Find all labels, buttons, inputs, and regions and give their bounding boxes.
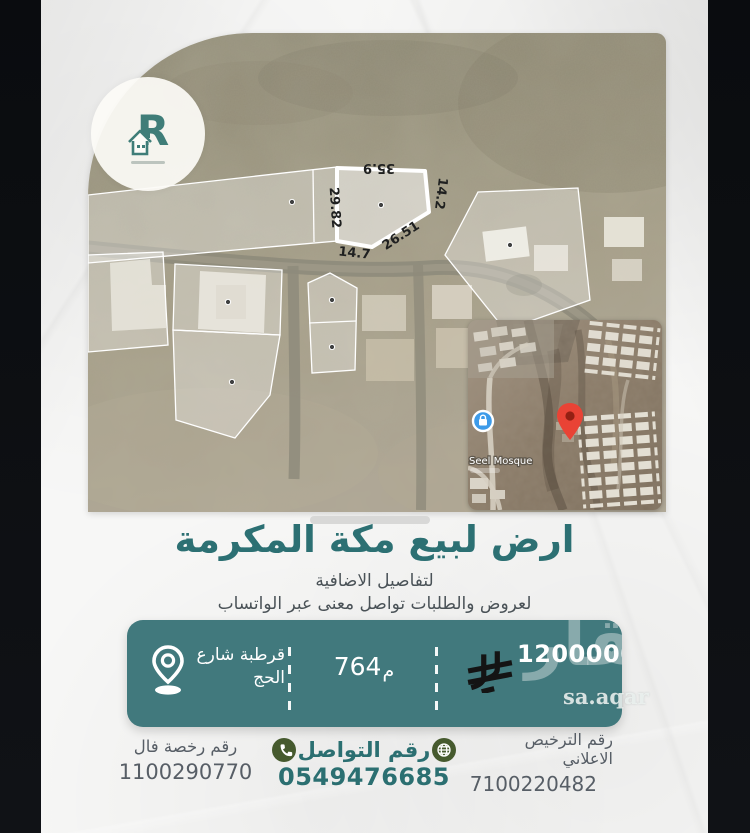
agency-logo-badge: R bbox=[91, 77, 205, 191]
area-unit: م bbox=[382, 662, 394, 681]
left-letterbox-bar bbox=[0, 0, 41, 833]
price-value: 1200000 bbox=[517, 640, 617, 668]
fal-license-number: 1100290770 bbox=[118, 760, 253, 784]
phone-icon bbox=[272, 738, 296, 762]
fal-license-block: رقم رخصة فال 1100290770 bbox=[118, 737, 253, 784]
inset-location-map: Seel Mosque bbox=[468, 320, 662, 510]
area-value: 764 bbox=[334, 654, 382, 679]
blue-poi-badge-icon bbox=[473, 411, 493, 431]
mosque-sublabel-smudge bbox=[470, 468, 500, 473]
house-r-logo-icon: R bbox=[113, 105, 183, 159]
dimension-top: 35.9 bbox=[363, 160, 395, 175]
subtitle-whatsapp: لعروض والطلبات تواصل معنى عبر الواتساب bbox=[41, 594, 708, 614]
contact-label: رقم التواصل bbox=[298, 738, 431, 762]
location-text: قرطبة شارع الحج bbox=[191, 644, 285, 690]
inset-map-graphic: Seel Mosque bbox=[468, 320, 662, 510]
ad-license-number: 7100220482 bbox=[420, 772, 597, 796]
page-title: ارض لبيع مكة المكرمة bbox=[41, 518, 708, 561]
saudi-riyal-icon bbox=[465, 649, 515, 693]
banner-divider-right bbox=[435, 647, 438, 711]
dimension-left: 29.82 bbox=[326, 187, 344, 229]
right-letterbox-bar bbox=[708, 0, 750, 833]
ad-license-label-line2: الاعلاني bbox=[420, 749, 613, 768]
subtitle-details: لتفاصيل الاضافية bbox=[41, 571, 708, 591]
banner-divider-left bbox=[288, 647, 291, 711]
location-pin-icon bbox=[150, 644, 186, 696]
watermark-latin: sa.aqar bbox=[563, 684, 649, 709]
ad-license-block: رقم الترخيص الاعلاني 7100220482 bbox=[420, 730, 613, 796]
fal-license-label: رقم رخصة فال bbox=[118, 737, 253, 757]
mosque-label: Seel Mosque bbox=[469, 456, 532, 467]
area-value-group: 764م bbox=[305, 654, 423, 679]
location-line2: الحج bbox=[191, 667, 285, 690]
location-line1: قرطبة شارع bbox=[191, 644, 285, 667]
logo-subtext-line bbox=[131, 161, 165, 164]
info-banner: عقار 1200000 764م قرطبة شارع الحج bbox=[127, 620, 622, 727]
ad-license-label-line1: رقم الترخيص bbox=[420, 730, 613, 749]
flyer-stage: 35.9 14.2 29.82 26.51 14.7 R bbox=[0, 0, 750, 833]
